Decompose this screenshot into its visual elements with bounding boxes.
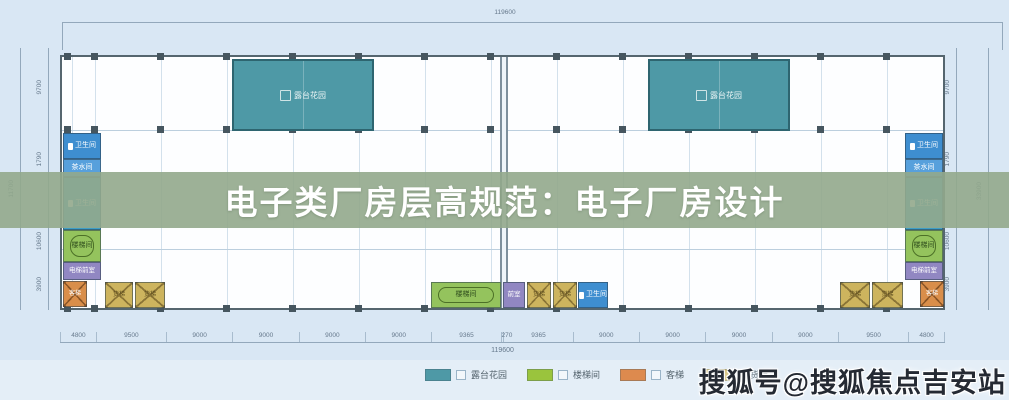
legend-item-stair: 楼梯间 xyxy=(527,368,600,381)
dim-right-10600: 10600 xyxy=(944,232,951,250)
freight-elevator-room: 货梯 xyxy=(135,282,165,308)
dim-segment: 9000 xyxy=(167,332,233,342)
legend-label: 客梯 xyxy=(666,368,684,381)
freight-elevator-room: 货梯 xyxy=(527,282,551,308)
toilet-room: 卫生间 xyxy=(578,282,608,308)
passenger-elevator-icon xyxy=(651,370,661,380)
passenger-elevator-room: 客梯 xyxy=(63,281,87,307)
dim-segment: 9000 xyxy=(640,332,706,342)
toilet-room: 卫生间 xyxy=(905,133,943,159)
terrace-garden-label: 露台花园 xyxy=(294,90,326,101)
toilet-icon xyxy=(68,143,73,150)
vestibule-room: 前室 xyxy=(503,282,525,308)
title-banner: 电子类厂房层高规范：电子厂房设计 xyxy=(0,172,1009,228)
dim-segment: 9365 xyxy=(432,332,501,342)
dim-tick-top-right xyxy=(1002,22,1003,50)
dim-left-9700: 9700 xyxy=(36,80,43,94)
stair-icon xyxy=(558,370,568,380)
stairwell-room: 楼梯间 xyxy=(905,230,943,262)
dim-left-3900: 3900 xyxy=(36,277,43,291)
dim-bottom-total: 119600 xyxy=(60,347,945,354)
dim-right-9700: 9700 xyxy=(944,80,951,94)
dim-right-1790: 1790 xyxy=(944,152,951,166)
dim-tick-top-left xyxy=(62,22,63,50)
dim-segment: 9500 xyxy=(97,332,167,342)
dim-segment: 9000 xyxy=(300,332,366,342)
legend-label: 楼梯间 xyxy=(573,368,600,381)
elevator-lobby-room: 电梯前室 xyxy=(63,262,101,280)
dim-segment: 9500 xyxy=(839,332,909,342)
freight-elevator-room: 货梯 xyxy=(872,282,903,308)
dim-row-bottom-segments: 4800 9500 9000 9000 9000 9000 9365 270 9… xyxy=(60,332,945,343)
dim-segment: 9000 xyxy=(366,332,432,342)
legend-item-passenger-elevator: 客梯 xyxy=(620,368,684,381)
dim-segment: 9000 xyxy=(773,332,839,342)
dim-left-10600: 10600 xyxy=(36,232,43,250)
stairwell-room: 楼梯间 xyxy=(431,282,501,308)
dim-segment: 9365 xyxy=(504,332,573,342)
toilet-icon xyxy=(910,143,915,150)
legend-label: 露台花园 xyxy=(471,368,507,381)
stairwell-room: 楼梯间 xyxy=(63,230,101,262)
terrace-garden-icon xyxy=(696,90,707,101)
legend-item-terrace: 露台花园 xyxy=(425,368,507,381)
watermark: 搜狐号@搜狐焦点吉安站 xyxy=(699,361,1006,400)
dim-line-top xyxy=(62,22,1003,23)
elevator-lobby-room: 电梯前室 xyxy=(905,262,943,280)
passenger-elevator-swatch xyxy=(620,369,646,381)
freight-elevator-room: 货梯 xyxy=(105,282,133,308)
terrace-garden-right: 露台花园 xyxy=(648,59,790,131)
dim-right-3900: 3900 xyxy=(944,277,951,291)
dim-segment: 4800 xyxy=(909,332,945,342)
terrace-swatch xyxy=(425,369,451,381)
dim-segment: 9000 xyxy=(574,332,640,342)
dim-segment: 4800 xyxy=(60,332,97,342)
floor-plan-page: 119600 9700 1790 10600 3900 11700 9700 1… xyxy=(0,0,1009,400)
page-title: 电子类厂房层高规范：电子厂房设计 xyxy=(225,176,785,224)
dim-segment: 9000 xyxy=(706,332,772,342)
stairwell-swatch xyxy=(527,369,553,381)
terrace-garden-left: 露台花园 xyxy=(232,59,374,131)
dim-top-total: 119600 xyxy=(460,9,550,16)
terrace-garden-icon xyxy=(456,370,466,380)
passenger-elevator-room: 客梯 xyxy=(920,281,944,307)
terrace-garden-icon xyxy=(280,90,291,101)
toilet-icon xyxy=(579,292,584,299)
dim-left-1790: 1790 xyxy=(36,152,43,166)
toilet-room: 卫生间 xyxy=(63,133,101,159)
terrace-garden-label: 露台花园 xyxy=(710,90,742,101)
dim-segment: 9000 xyxy=(233,332,299,342)
freight-elevator-room: 货梯 xyxy=(553,282,577,308)
freight-elevator-room: 货梯 xyxy=(840,282,870,308)
